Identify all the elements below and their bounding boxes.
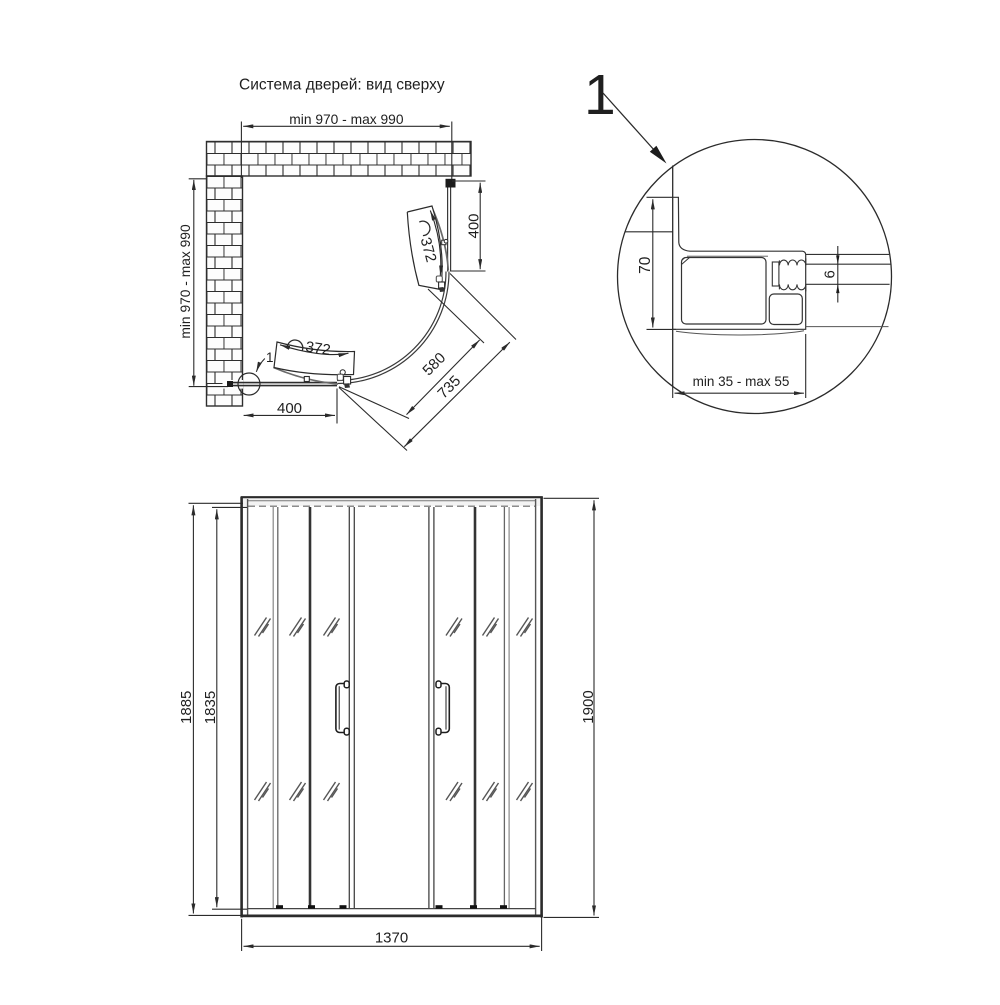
svg-text:min 970 - max 990: min 970 - max 990 xyxy=(178,224,193,339)
svg-text:Система дверей: вид сверху: Система дверей: вид сверху xyxy=(239,77,445,94)
svg-text:min 35 - max 55: min 35 - max 55 xyxy=(693,374,790,389)
svg-text:70: 70 xyxy=(637,256,654,274)
svg-text:1885: 1885 xyxy=(178,691,195,724)
svg-text:6: 6 xyxy=(822,270,839,278)
svg-text:1: 1 xyxy=(266,350,274,365)
svg-text:400: 400 xyxy=(465,213,482,238)
svg-text:1835: 1835 xyxy=(202,691,219,724)
svg-text:min 970 - max 990: min 970 - max 990 xyxy=(289,112,404,127)
svg-text:400: 400 xyxy=(277,400,302,417)
svg-text:1370: 1370 xyxy=(375,930,408,947)
svg-text:1900: 1900 xyxy=(580,690,597,723)
svg-text:1: 1 xyxy=(584,63,616,127)
